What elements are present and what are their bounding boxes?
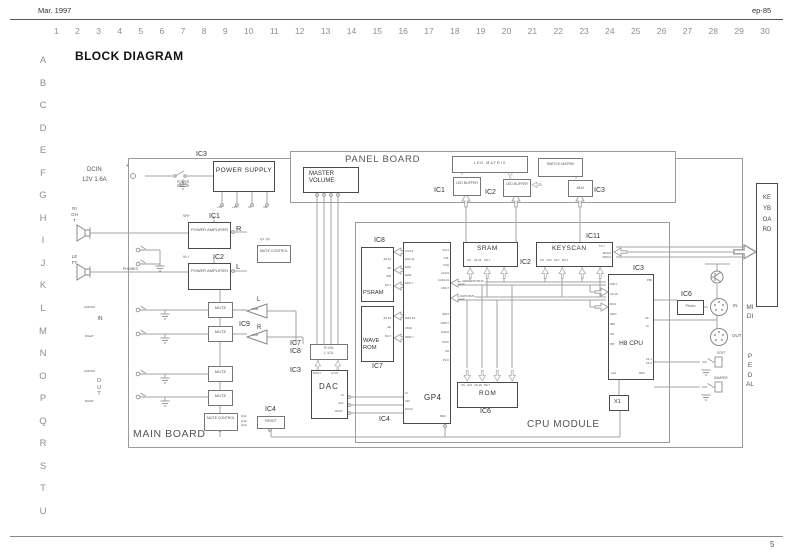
ic4-gp4-label: IC4 <box>379 416 390 424</box>
h8-xtal-pin: XAL <box>611 372 616 375</box>
data-bus-label: DATA BUS <box>459 295 475 298</box>
input-jack-icon <box>136 306 145 312</box>
keyboard-label: KEYBOARD <box>762 193 772 236</box>
volume-filter-label: R-VOL L-VOL <box>311 346 347 356</box>
dac-si-pin: SI <box>341 394 344 397</box>
led-buffer2-label: LED BUFFER <box>504 182 530 186</box>
ic11-label: IC11 <box>586 233 600 241</box>
gp4-left-top-pins: CO0-3 EA0-14 EOE EWE ED0-7 <box>405 247 414 288</box>
keyscan-mk-pins: MK0-9 MD0-9 <box>594 252 611 260</box>
psu-out3-label: VL <box>248 206 252 209</box>
h8-res-pin: RES <box>639 372 645 375</box>
mute-control-top-box <box>257 245 291 263</box>
left-speaker-label: LEFT <box>71 254 78 266</box>
h8-cpu-label: H8 CPU <box>619 340 643 347</box>
left-speaker-icon <box>77 264 90 280</box>
wave-rom-pins: A0-19 CE D0-7 <box>367 314 391 342</box>
ic2-amp-label: IC2 <box>213 254 224 262</box>
x1-label: X1 <box>614 399 621 405</box>
panel-board-label: PANEL BOARD <box>345 155 420 166</box>
amp-l-label: L <box>257 297 260 304</box>
led-buffer1-box <box>453 177 481 196</box>
sram-label: SRAM <box>477 245 498 252</box>
gp4-res-pin: RES <box>440 415 446 418</box>
ic2-label: IC2 <box>485 189 496 197</box>
dac-label: DAC <box>319 382 339 391</box>
h8-p80-pin: P80 <box>636 279 652 282</box>
amp1-text: AMP <box>252 308 259 311</box>
mute1-label: MUTE <box>208 306 233 311</box>
power-switch-label: POWER SWITCH <box>172 181 194 188</box>
in-label: IN <box>97 316 103 323</box>
power-supply-label: POWER SUPPLY <box>214 167 274 174</box>
h8-si-pin: SI <box>646 325 649 328</box>
damper-pedal-jack-icon <box>702 382 722 392</box>
soft-pedal-label: SOFT <box>717 352 726 356</box>
dac-lrck-pin: LRCK <box>335 410 342 413</box>
keyscan-t-pins: T0-7 <box>599 245 605 248</box>
gp4-left-bot-pins: SI SDI DACC <box>405 389 413 413</box>
keyscan-label: KEYSCAN <box>552 245 587 252</box>
ic1-label: IC1 <box>434 187 445 195</box>
amp-r-label: R <box>257 325 261 332</box>
power-supply-box <box>213 161 275 192</box>
mute-control-label: MUTE CONTROL <box>205 416 237 420</box>
psram-label: PSRAM <box>363 290 384 297</box>
ic2-sram-label: IC2 <box>520 259 531 267</box>
ic3-power-label: IC3 <box>196 151 207 159</box>
right-speaker-label: RIGHT <box>71 206 78 224</box>
output-jack-icon <box>136 370 145 376</box>
soft-pedal-jack-icon <box>702 357 722 367</box>
dcin-rating-label: 12V 1.6A <box>82 177 107 184</box>
ic4-reset-label: IC4 <box>265 406 276 414</box>
output-jack-icon <box>136 393 145 399</box>
gp4-right-top-pins: IC0-2 CSL CSH CA0-9 CA10-19 CD0-7 <box>425 247 449 292</box>
led-matrix-label: LED MATRIX <box>452 161 528 165</box>
transistor-icon <box>711 271 723 283</box>
schematic-wiring <box>0 0 793 560</box>
h8-left-pins: P00-7 A0-19 D0-3 WAIT IMD INT PW <box>610 280 617 349</box>
led-buffer1-label: LED BUFFER <box>454 181 480 185</box>
main-board-label: MAIN BOARD <box>133 428 206 440</box>
mute-control-top-label: MUTE CONTROL <box>258 249 290 253</box>
mux-label: MUX <box>568 186 593 190</box>
in-right-label: RIGHT <box>85 335 94 338</box>
r-out-label: R <box>236 225 241 234</box>
out-label: OUT <box>96 378 102 398</box>
mute3-label: MUTE <box>208 370 233 375</box>
mute2-label: MUTE <box>208 330 233 335</box>
ic7-dac-label: IC7 <box>290 340 301 348</box>
pin-circles <box>131 174 447 432</box>
ic9-label: IC9 <box>239 321 250 329</box>
midi-out-label: OUT <box>732 333 742 338</box>
dcin-label: DCIN <box>87 167 102 174</box>
vl-label: VL+ <box>183 255 189 259</box>
ic3-panel-label: IC3 <box>594 187 605 195</box>
dac-lout-pin: LOUT <box>331 372 338 375</box>
ic3-dac-label: IC3 <box>290 367 301 375</box>
vr-label: VR+ <box>183 214 190 218</box>
midi-out-connector-icon <box>711 329 728 346</box>
right-speaker-icon <box>77 225 90 241</box>
sram-pins: CS A0-14 D0-7 <box>467 259 490 262</box>
pedal-section-label: PEDAL <box>746 352 754 390</box>
ic6-rom-label: IC6 <box>480 408 491 416</box>
dac-clk-pin: CLK <box>338 402 343 405</box>
h8-ff-pins: FF-1 FF-0 <box>638 357 652 365</box>
ic8-psram-label: IC8 <box>374 237 385 245</box>
gp4-right-mid-pins: WAIT GPINT DA0-8 IOCK D0 PV-0 <box>427 310 449 365</box>
psu-out2-label: +9V <box>232 206 237 209</box>
psu-out1-label: +5V <box>217 206 222 209</box>
ic7-wave-label: IC7 <box>372 363 383 371</box>
power-amp-l-label: POWER AMPLIFIER <box>190 269 229 274</box>
h8-sk-pin: SK <box>645 317 649 320</box>
in-mono-label: L/MONO <box>84 306 95 309</box>
midi-section-label: MIDI <box>746 303 754 322</box>
ic3-h8-label: IC3 <box>633 265 644 273</box>
out-mono-label: L/MONO <box>84 370 95 373</box>
rom-pins: CS A19 A0-18 D0-7 <box>461 384 490 387</box>
mute4-label: MUTE <box>208 394 233 399</box>
ic6-photo-label: IC6 <box>681 291 692 299</box>
rom-label: ROM <box>479 390 497 397</box>
dc-plus-label: + <box>126 164 129 170</box>
reset-label: RESET <box>257 419 285 423</box>
q-top-label: Q1 Q2 <box>260 238 270 241</box>
phones-jack-icon <box>136 260 145 266</box>
gp4-left-mid-pins: WA0-19 WOE WD0-7 <box>405 314 415 343</box>
keyscan-pins: CS CS4 A0-7 D0-7 <box>540 259 568 262</box>
cpu-module-label: CPU MODULE <box>527 419 600 431</box>
power-amp-r-label: POWER AMPLIFIER <box>190 228 229 233</box>
master-volume-label: MASTER VOLUME <box>309 171 349 185</box>
ic1-amp-label: IC1 <box>209 213 220 221</box>
switch-matrix-label: SWITCH MATRIX <box>540 162 581 166</box>
ic8-dac-label: IC8 <box>290 348 301 356</box>
q-list-label: Q11 Q12 Q13 <box>241 414 247 428</box>
phones-jack-icon <box>136 246 145 252</box>
amp2-text: AMP <box>252 334 259 337</box>
gp4-label: GP4 <box>424 393 442 402</box>
midi-in-connector-icon <box>711 299 728 316</box>
psu-out4-label: VR <box>263 206 267 209</box>
input-jack-icon <box>136 330 145 336</box>
out-right-label: RIGHT <box>85 400 94 403</box>
address-bus-label: ADDRESS BUS <box>461 280 485 283</box>
midi-in-label: IN <box>733 303 738 308</box>
phones-label: PHONES <box>123 267 138 271</box>
damper-pedal-label: DAMPER <box>714 377 728 381</box>
photocoupler-label: Photo <box>678 304 703 308</box>
dac-rout-pin: ROUT <box>313 372 321 375</box>
l-out-label: L <box>236 263 240 272</box>
psram-pins: A0-14 OE WR D0-7 <box>365 255 391 290</box>
switch-matrix-box <box>538 158 583 177</box>
manual-page: Mar. 1997 ep-85 5 1234567891011121314151… <box>0 0 793 560</box>
